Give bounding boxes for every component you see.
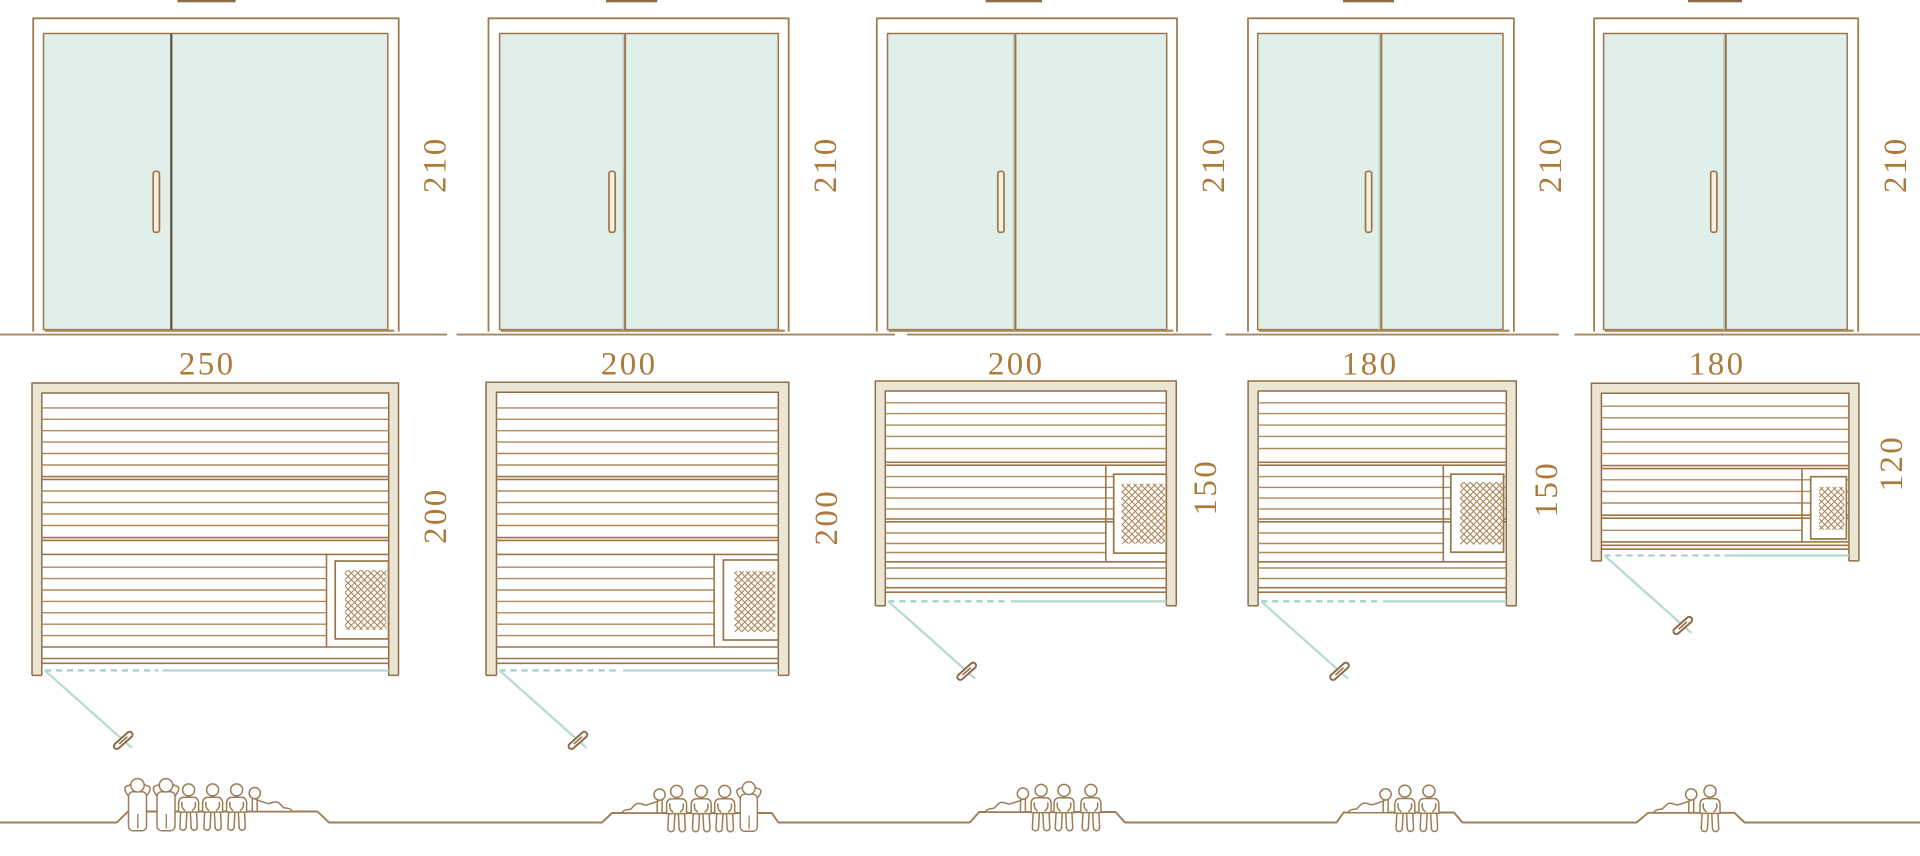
svg-text:200: 200 bbox=[809, 489, 845, 546]
svg-text:150: 150 bbox=[1188, 459, 1224, 516]
svg-text:210: 210 bbox=[418, 136, 454, 193]
svg-text:120: 120 bbox=[1874, 435, 1910, 492]
svg-text:200: 200 bbox=[418, 487, 454, 544]
svg-text:150: 150 bbox=[1529, 461, 1565, 518]
svg-text:210: 210 bbox=[1196, 136, 1232, 193]
svg-text:180: 180 bbox=[1689, 346, 1746, 382]
svg-text:210: 210 bbox=[1878, 136, 1914, 193]
svg-text:180: 180 bbox=[1342, 346, 1399, 382]
svg-text:210: 210 bbox=[1533, 136, 1569, 193]
svg-text:200: 200 bbox=[988, 346, 1045, 382]
svg-text:200: 200 bbox=[601, 346, 658, 382]
svg-text:210: 210 bbox=[808, 136, 844, 193]
svg-text:250: 250 bbox=[179, 346, 236, 382]
